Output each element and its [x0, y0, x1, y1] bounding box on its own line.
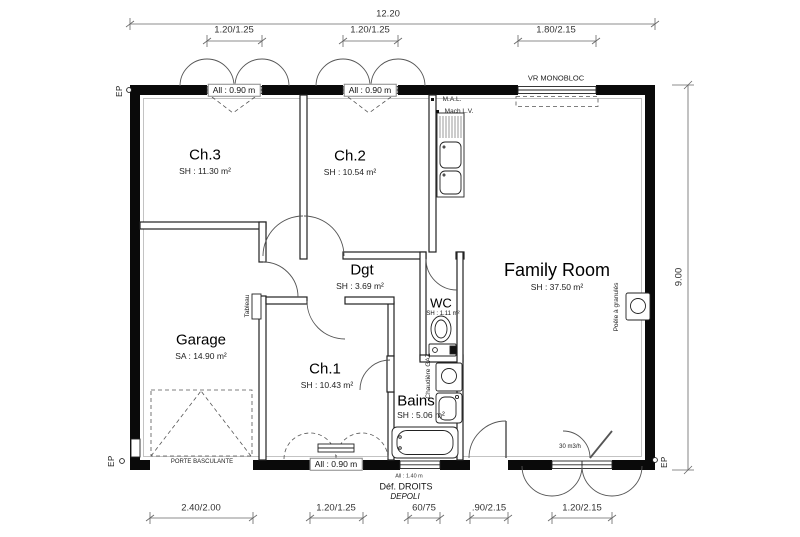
room-label-ch3: Ch.3 — [189, 148, 221, 163]
casement-arc — [235, 59, 289, 86]
bathtub-icon — [392, 427, 458, 458]
garage-door-diagonals — [151, 391, 251, 456]
window-bains — [400, 461, 440, 469]
pellet-stove-icon — [626, 293, 650, 320]
kitchen-sink-unit — [437, 113, 464, 197]
toilet-icon — [429, 316, 457, 356]
downspout-circle — [120, 459, 125, 464]
downspout-circle — [653, 458, 658, 463]
glazing-note-line2: DEPOLI — [390, 493, 419, 501]
room-area-family-room: SH : 37.50 m² — [531, 283, 583, 292]
dim-bottom-patio-door: 1.20/2.15 — [562, 503, 602, 513]
air-vent-label: 30 m3/h — [559, 444, 581, 450]
room-label-wc: WC — [430, 297, 452, 310]
downspout-circle — [127, 88, 132, 93]
room-area-wc: SH : 1.11 m² — [426, 311, 459, 317]
dishwasher-label: Mach L.V. — [445, 109, 474, 116]
room-label-dgt: Dgt — [350, 263, 373, 278]
patio-door-arc-outside — [522, 466, 582, 496]
radiator-icon — [318, 444, 354, 452]
sill-label-ch2: All : 0.90 m — [344, 84, 397, 97]
washing-machine-label: M.A.L. — [443, 97, 462, 104]
dim-top-window-vr: 1.80/2.15 — [536, 25, 576, 35]
machlv-marker — [436, 110, 439, 113]
room-area-garage: SA : 14.90 m² — [175, 352, 227, 361]
casement-arc — [371, 59, 425, 86]
dim-total-width: 12.20 — [376, 9, 400, 19]
door-ch1-arc — [307, 301, 345, 339]
floor-plan: 12.20 1.20/1.25 1.20/1.25 1.80/2.15 9.00… — [0, 0, 800, 537]
downspout-label-top-left: EP — [116, 85, 124, 97]
casement-swing-ch2 — [348, 97, 391, 113]
door-ch3-arc — [263, 216, 303, 256]
dim-bottom-window-ch1: 1.20/1.25 — [316, 503, 356, 513]
room-area-ch2: SH : 10.54 m² — [324, 168, 376, 177]
casement-arc — [180, 59, 234, 86]
dim-top-window-ch2: 1.20/1.25 — [350, 25, 390, 35]
glazing-note-line1: Déf. DROITS — [379, 483, 432, 492]
room-label-ch2: Ch.2 — [334, 149, 366, 164]
pellet-stove-label: Poêle à granulés — [614, 283, 621, 332]
sill-label-bains: All : 1.40 m — [395, 474, 423, 480]
downspout-label-bottom-right: EP — [661, 456, 669, 468]
bains-door-leaf — [387, 356, 394, 392]
vr-monobloc-label: VR MONOBLOC — [528, 74, 584, 82]
patio-door-leaf — [590, 431, 612, 458]
dim-top-window-ch3: 1.20/1.25 — [214, 25, 254, 35]
casement-arc — [316, 59, 370, 86]
downspout-label-bottom-left: EP — [108, 455, 116, 467]
dim-total-height: 9.00 — [674, 268, 684, 287]
garage-door-label: PORTE BASCULANTE — [169, 459, 235, 465]
room-area-ch3: SH : 11.30 m² — [179, 167, 231, 176]
electrical-panel-icon — [252, 294, 261, 319]
entry-door-arc — [469, 421, 506, 458]
room-area-dgt: SH : 3.69 m² — [336, 282, 384, 291]
sill-label-ch1: All : 0.90 m — [310, 458, 363, 471]
window-vr-monobloc — [518, 87, 596, 94]
dim-bottom-window-bains: 60/75 — [412, 503, 436, 513]
room-label-garage: Garage — [176, 333, 226, 348]
patio-door-arc-outside — [582, 466, 642, 496]
sill-label-ch3: All : 0.90 m — [208, 84, 261, 97]
electrical-panel-label: Tableau — [245, 295, 252, 318]
dim-bottom-garage-door: 2.40/2.00 — [181, 503, 221, 513]
room-area-ch1: SH : 10.43 m² — [301, 381, 353, 390]
room-area-bains: SH : 5.06 m² — [397, 411, 445, 420]
dim-bottom-entry-door: .90/2.15 — [472, 503, 506, 513]
door-bains-arc — [360, 360, 390, 390]
room-label-ch1: Ch.1 — [309, 362, 341, 377]
boiler-icon — [436, 363, 462, 391]
door-garage-arc — [263, 262, 298, 297]
mal-marker — [431, 98, 434, 101]
casement-swing-ch3 — [212, 97, 255, 113]
door-ch2-arc — [304, 216, 344, 256]
boiler-label: Chaudière GAZ — [426, 353, 433, 398]
door-wc-arc — [426, 259, 457, 290]
room-label-family-room: Family Room — [504, 261, 610, 279]
meter-box-icon — [131, 439, 140, 457]
vr-shutter-box — [516, 97, 598, 107]
garage-door-outline — [151, 390, 252, 456]
